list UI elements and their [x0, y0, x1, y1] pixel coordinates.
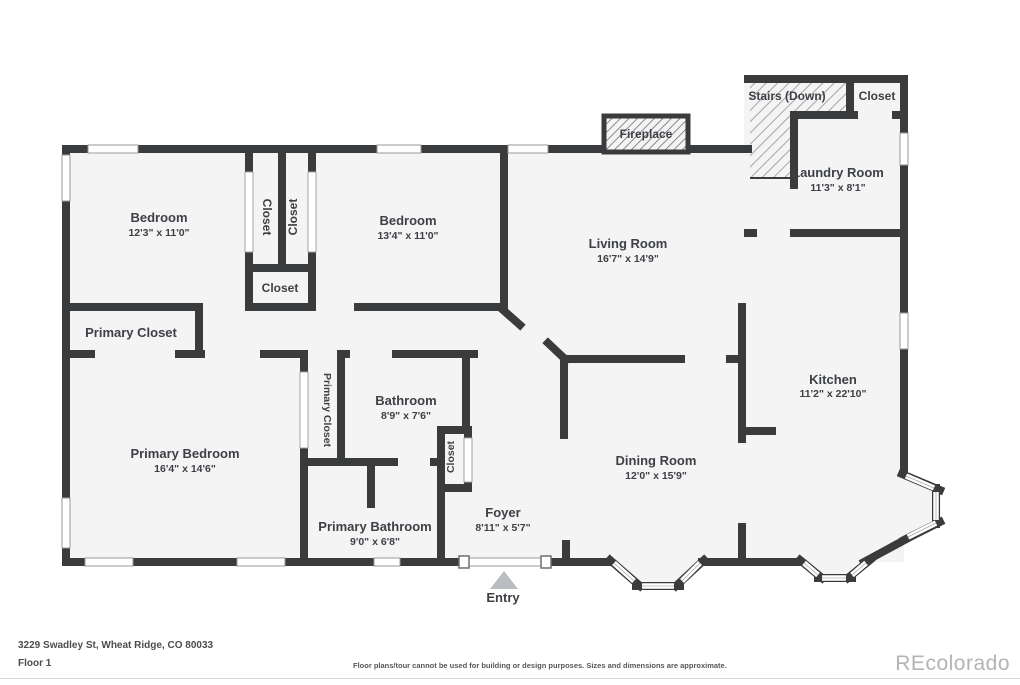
footer-floor: Floor 1 — [18, 658, 52, 669]
foyer-dims: 8'11" x 5'7" — [475, 522, 530, 534]
bedroom-left-dims: 12'3" x 11'0" — [128, 227, 189, 239]
primary-bedroom-label: Primary Bedroom — [130, 446, 239, 461]
closet-top-right-label: Closet — [859, 89, 896, 103]
fireplace-label: Fireplace — [620, 127, 673, 141]
laundry-room-dims: 11'3" x 8'1" — [810, 182, 865, 194]
bedroom-middle-dims: 13'4" x 11'0" — [377, 230, 438, 242]
footer-disclaimer: Floor plans/tour cannot be used for buil… — [353, 661, 727, 670]
watermark-logo: REcolorado — [895, 652, 1010, 675]
living-room-dims: 16'7" x 14'9" — [597, 253, 659, 265]
closet-bedroom-middle-label: Closet — [286, 199, 300, 236]
primary-bedroom-dims: 16'4" x 14'6" — [154, 463, 216, 475]
dining-room-label: Dining Room — [616, 453, 697, 468]
stairs-label: Stairs (Down) — [748, 89, 825, 103]
footer: 3229 Swadley St, Wheat Ridge, CO 80033 F… — [0, 640, 1020, 679]
kitchen-label: Kitchen — [809, 372, 857, 387]
bedroom-left-label: Bedroom — [130, 210, 187, 225]
primary-closet-tall-label: Primary Closet — [321, 373, 333, 448]
bathroom-dims: 8'9" x 7'6" — [381, 410, 431, 422]
entry-door — [459, 556, 551, 568]
kitchen-dims: 11'2" x 22'10" — [800, 388, 867, 400]
living-room-label: Living Room — [589, 236, 668, 251]
foyer-label: Foyer — [485, 505, 520, 520]
entry-label: Entry — [486, 590, 520, 605]
primary-bathroom-label: Primary Bathroom — [318, 519, 431, 534]
floor-plan-svg: Stairs (Down) Closet Laundry Room 11'3" … — [0, 0, 1020, 680]
bathroom-label: Bathroom — [375, 393, 436, 408]
dining-room-dims: 12'0" x 15'9" — [625, 470, 687, 482]
bedroom-middle-label: Bedroom — [379, 213, 436, 228]
footer-address: 3229 Swadley St, Wheat Ridge, CO 80033 — [18, 640, 214, 651]
closet-bathroom-label: Closet — [445, 440, 457, 473]
closet-bedroom-left-label: Closet — [260, 199, 274, 236]
primary-bathroom-dims: 9'0" x 6'8" — [350, 536, 400, 548]
laundry-room-label: Laundry Room — [792, 165, 884, 180]
closet-hall-label: Closet — [262, 281, 299, 295]
entry-arrow-icon — [490, 571, 518, 589]
primary-closet-room-label: Primary Closet — [85, 325, 177, 340]
